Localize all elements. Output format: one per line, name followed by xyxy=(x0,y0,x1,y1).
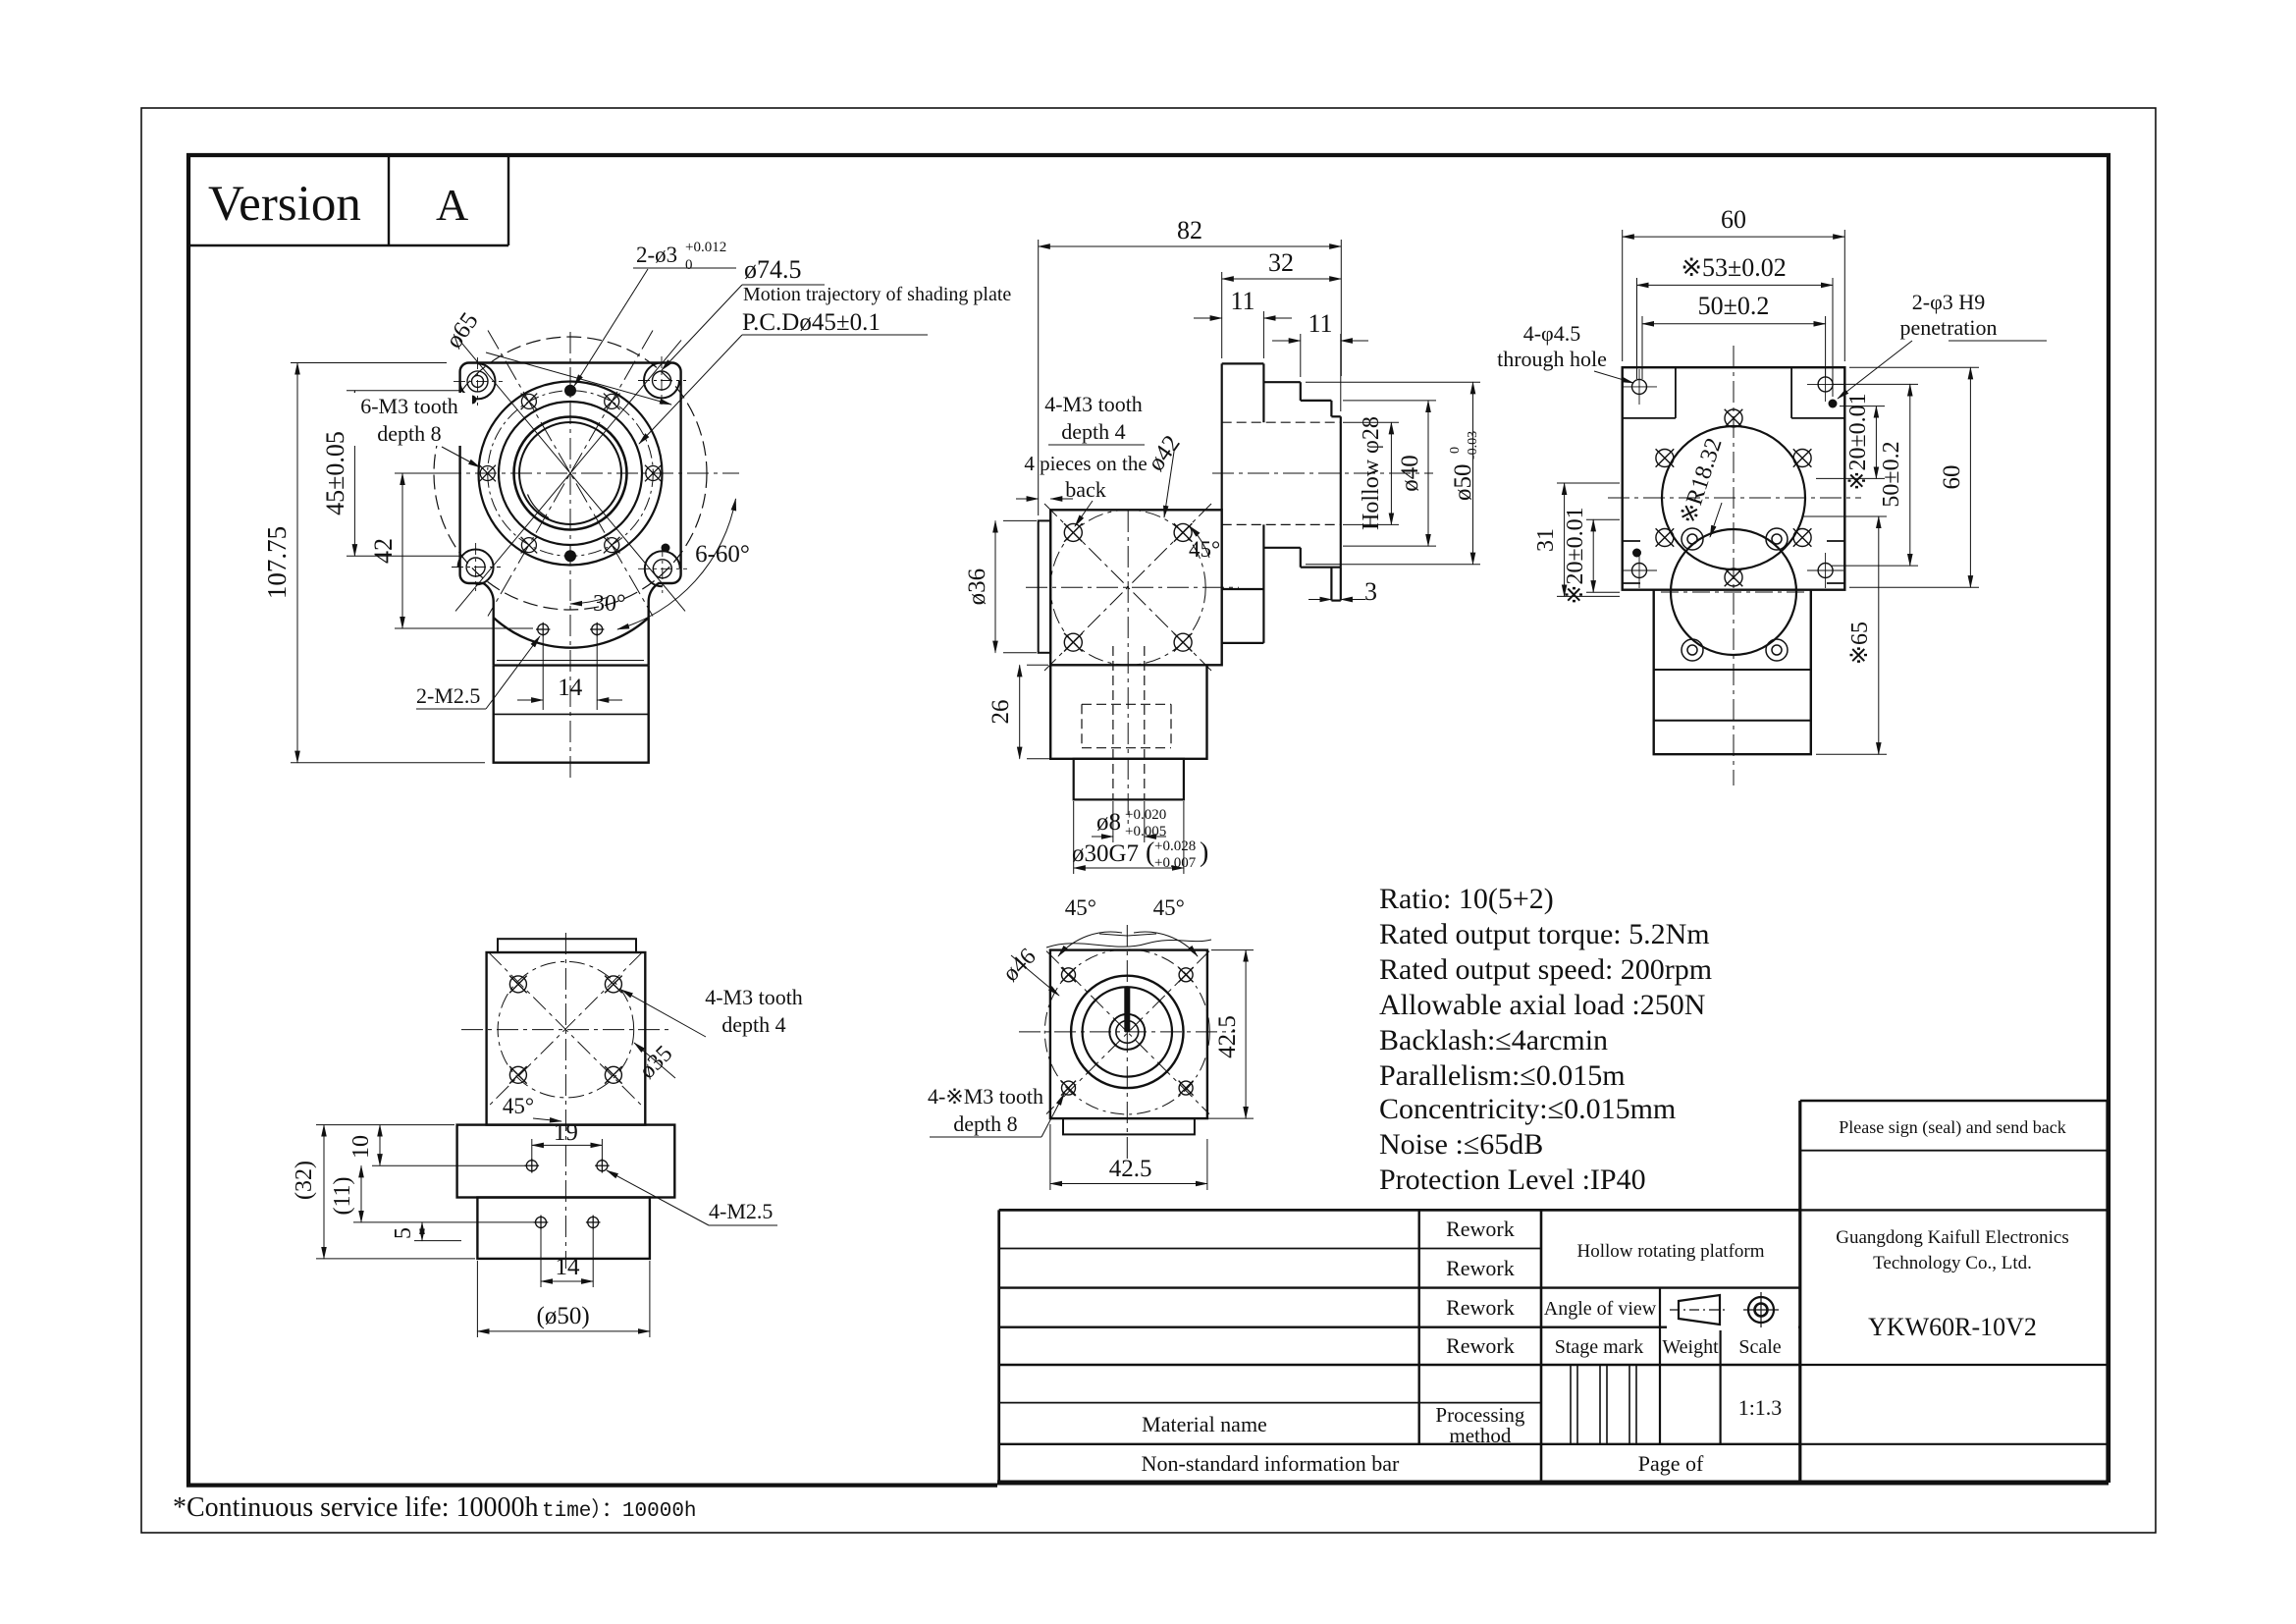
svg-text:Weight: Weight xyxy=(1662,1336,1719,1358)
svg-text:ø36: ø36 xyxy=(964,568,990,606)
svg-text:method: method xyxy=(1449,1424,1511,1447)
svg-text:through hole: through hole xyxy=(1497,347,1607,371)
svg-text:*Continuous service life: 1000: *Continuous service life: 10000h xyxy=(173,1492,539,1523)
svg-text:Allowable axial load :250N: Allowable axial load :250N xyxy=(1379,989,1705,1021)
svg-text:-0.03: -0.03 xyxy=(1466,431,1480,460)
svg-text:Rework: Rework xyxy=(1446,1295,1515,1320)
svg-text:4-M3 tooth: 4-M3 tooth xyxy=(1044,392,1143,416)
svg-text:ø46: ø46 xyxy=(998,944,1041,987)
svg-text:(32): (32) xyxy=(292,1161,317,1200)
svg-text:5: 5 xyxy=(391,1227,416,1239)
svg-text:42.5: 42.5 xyxy=(1109,1156,1152,1182)
svg-text:+0.020: +0.020 xyxy=(1125,807,1166,823)
svg-text:back: back xyxy=(1065,477,1106,502)
svg-text:Version: Version xyxy=(208,177,361,232)
svg-text:(ø50): (ø50) xyxy=(537,1303,590,1329)
svg-text:Technology Co., Ltd.: Technology Co., Ltd. xyxy=(1873,1253,2032,1273)
svg-text:※53±0.02: ※53±0.02 xyxy=(1681,253,1787,282)
svg-text:Stage mark: Stage mark xyxy=(1555,1336,1644,1358)
svg-text:Hollow rotating platform: Hollow rotating platform xyxy=(1576,1241,1764,1262)
svg-text:depth 4: depth 4 xyxy=(721,1012,785,1037)
svg-text:4 pieces on the: 4 pieces on the xyxy=(1024,452,1147,475)
svg-text:ø42: ø42 xyxy=(1143,431,1186,476)
svg-text:Please sign (seal) and send ba: Please sign (seal) and send back xyxy=(1839,1117,2065,1138)
svg-text:50±0.2: 50±0.2 xyxy=(1879,441,1904,507)
svg-text:6-60°: 6-60° xyxy=(695,541,750,568)
svg-text:42: 42 xyxy=(369,538,398,564)
svg-text:Parallelism:≤0.015m: Parallelism:≤0.015m xyxy=(1379,1059,1626,1092)
svg-text:30°: 30° xyxy=(593,591,626,617)
svg-text:14: 14 xyxy=(556,1254,581,1280)
svg-text:P.C.Dø45±0.1: P.C.Dø45±0.1 xyxy=(742,309,881,336)
svg-text:※20±0.01: ※20±0.01 xyxy=(1563,507,1588,604)
svg-text:19: 19 xyxy=(554,1119,578,1146)
svg-text:2-φ3 H9: 2-φ3 H9 xyxy=(1912,290,1985,314)
svg-text:45°: 45° xyxy=(503,1094,534,1118)
svg-text:depth 4: depth 4 xyxy=(1061,419,1125,444)
svg-text:Angle of view: Angle of view xyxy=(1544,1298,1657,1320)
svg-text:4-φ4.5: 4-φ4.5 xyxy=(1523,321,1581,346)
svg-text:45°: 45° xyxy=(1189,537,1220,562)
svg-text:11: 11 xyxy=(1230,287,1255,315)
svg-text:26: 26 xyxy=(988,700,1014,725)
svg-text:Motion trajectory of shading p: Motion trajectory of shading plate xyxy=(743,284,1011,305)
svg-text:(: ( xyxy=(1146,838,1154,868)
svg-text:Page of: Page of xyxy=(1638,1451,1704,1476)
svg-text:42.5: 42.5 xyxy=(1214,1015,1241,1058)
svg-text:A: A xyxy=(436,180,468,230)
svg-text:Protection Level :IP40: Protection Level :IP40 xyxy=(1379,1164,1646,1196)
svg-text:6-M3 tooth: 6-M3 tooth xyxy=(360,394,458,418)
svg-text:Non-standard information bar: Non-standard information bar xyxy=(1142,1451,1400,1476)
svg-text:0: 0 xyxy=(1448,447,1463,454)
svg-text:※65: ※65 xyxy=(1847,622,1873,665)
svg-text:0: 0 xyxy=(685,257,693,273)
svg-text:2-ø3: 2-ø3 xyxy=(636,243,677,267)
svg-text:YKW60R-10V2: YKW60R-10V2 xyxy=(1868,1313,2037,1341)
svg-text:45°: 45° xyxy=(1065,895,1096,920)
svg-text:depth 8: depth 8 xyxy=(953,1111,1017,1136)
svg-text:※R18.32: ※R18.32 xyxy=(1676,435,1728,527)
svg-text:(11): (11) xyxy=(330,1176,355,1215)
svg-text:14: 14 xyxy=(558,675,583,701)
svg-text:107.75: 107.75 xyxy=(262,526,292,599)
svg-text:Guangdong Kaifull Electronics: Guangdong Kaifull Electronics xyxy=(1836,1227,2068,1248)
svg-text:45±0.05: 45±0.05 xyxy=(321,431,349,515)
svg-text:※20±0.01: ※20±0.01 xyxy=(1845,393,1871,490)
svg-text:time）：10000h: time）：10000h xyxy=(542,1498,697,1523)
svg-text:Ratio: 10(5+2): Ratio: 10(5+2) xyxy=(1379,883,1554,915)
svg-text:3: 3 xyxy=(1364,577,1377,606)
svg-text:+0.007: +0.007 xyxy=(1154,855,1197,871)
svg-text:ø50: ø50 xyxy=(1450,464,1476,502)
svg-text:4-M3 tooth: 4-M3 tooth xyxy=(705,985,803,1009)
svg-text:ø35: ø35 xyxy=(635,1041,678,1084)
svg-text:60: 60 xyxy=(1721,205,1746,234)
svg-text:Scale: Scale xyxy=(1738,1336,1781,1358)
svg-text:31: 31 xyxy=(1533,528,1559,552)
svg-text:1:1.3: 1:1.3 xyxy=(1738,1395,1783,1420)
svg-text:Concentricity:≤0.015mm: Concentricity:≤0.015mm xyxy=(1379,1093,1676,1125)
svg-text:32: 32 xyxy=(1268,248,1294,277)
svg-text:+0.028: +0.028 xyxy=(1154,839,1196,854)
svg-text:Noise :≤65dB: Noise :≤65dB xyxy=(1379,1128,1543,1161)
svg-text:ø74.5: ø74.5 xyxy=(744,255,802,284)
svg-text:ø8: ø8 xyxy=(1096,809,1121,836)
svg-text:Rated output speed: 200rpm: Rated output speed: 200rpm xyxy=(1379,953,1712,986)
svg-text:11: 11 xyxy=(1308,309,1332,338)
svg-text:ø65: ø65 xyxy=(441,308,484,353)
svg-text:Rated output torque: 5.2Nm: Rated output torque: 5.2Nm xyxy=(1379,918,1710,950)
svg-text:82: 82 xyxy=(1177,216,1202,244)
svg-text:60: 60 xyxy=(1939,465,1965,490)
svg-text:): ) xyxy=(1200,838,1208,868)
svg-text:penetration: penetration xyxy=(1900,315,1998,340)
svg-text:4-M2.5: 4-M2.5 xyxy=(709,1199,773,1223)
svg-text:10: 10 xyxy=(348,1135,374,1159)
svg-text:50±0.2: 50±0.2 xyxy=(1698,292,1770,320)
svg-text:Rework: Rework xyxy=(1446,1333,1515,1358)
svg-text:Material name: Material name xyxy=(1142,1412,1267,1436)
svg-text:ø40: ø40 xyxy=(1397,455,1423,492)
svg-text:2-M2.5: 2-M2.5 xyxy=(416,683,480,708)
svg-text:4-※M3 tooth: 4-※M3 tooth xyxy=(928,1084,1043,1109)
svg-text:ø30G7: ø30G7 xyxy=(1072,840,1139,867)
svg-text:Rework: Rework xyxy=(1446,1217,1515,1241)
svg-text:+0.012: +0.012 xyxy=(685,240,726,255)
svg-text:depth 8: depth 8 xyxy=(377,421,441,446)
svg-text:45°: 45° xyxy=(1153,895,1185,920)
svg-text:Backlash:≤4arcmin: Backlash:≤4arcmin xyxy=(1379,1024,1608,1056)
svg-text:Hollow φ28: Hollow φ28 xyxy=(1359,416,1384,530)
svg-text:Rework: Rework xyxy=(1446,1256,1515,1280)
